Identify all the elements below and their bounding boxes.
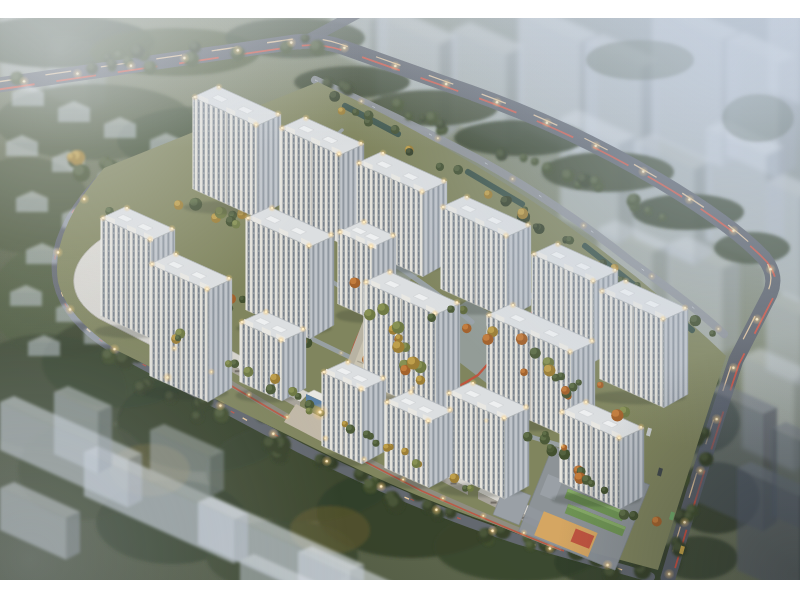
render-canvas bbox=[0, 18, 800, 580]
architectural-render-page bbox=[0, 0, 800, 600]
atmosphere-haze bbox=[0, 18, 800, 580]
letterbox-bottom bbox=[0, 580, 800, 600]
aerial-rendering bbox=[0, 18, 800, 580]
letterbox-top bbox=[0, 0, 800, 18]
